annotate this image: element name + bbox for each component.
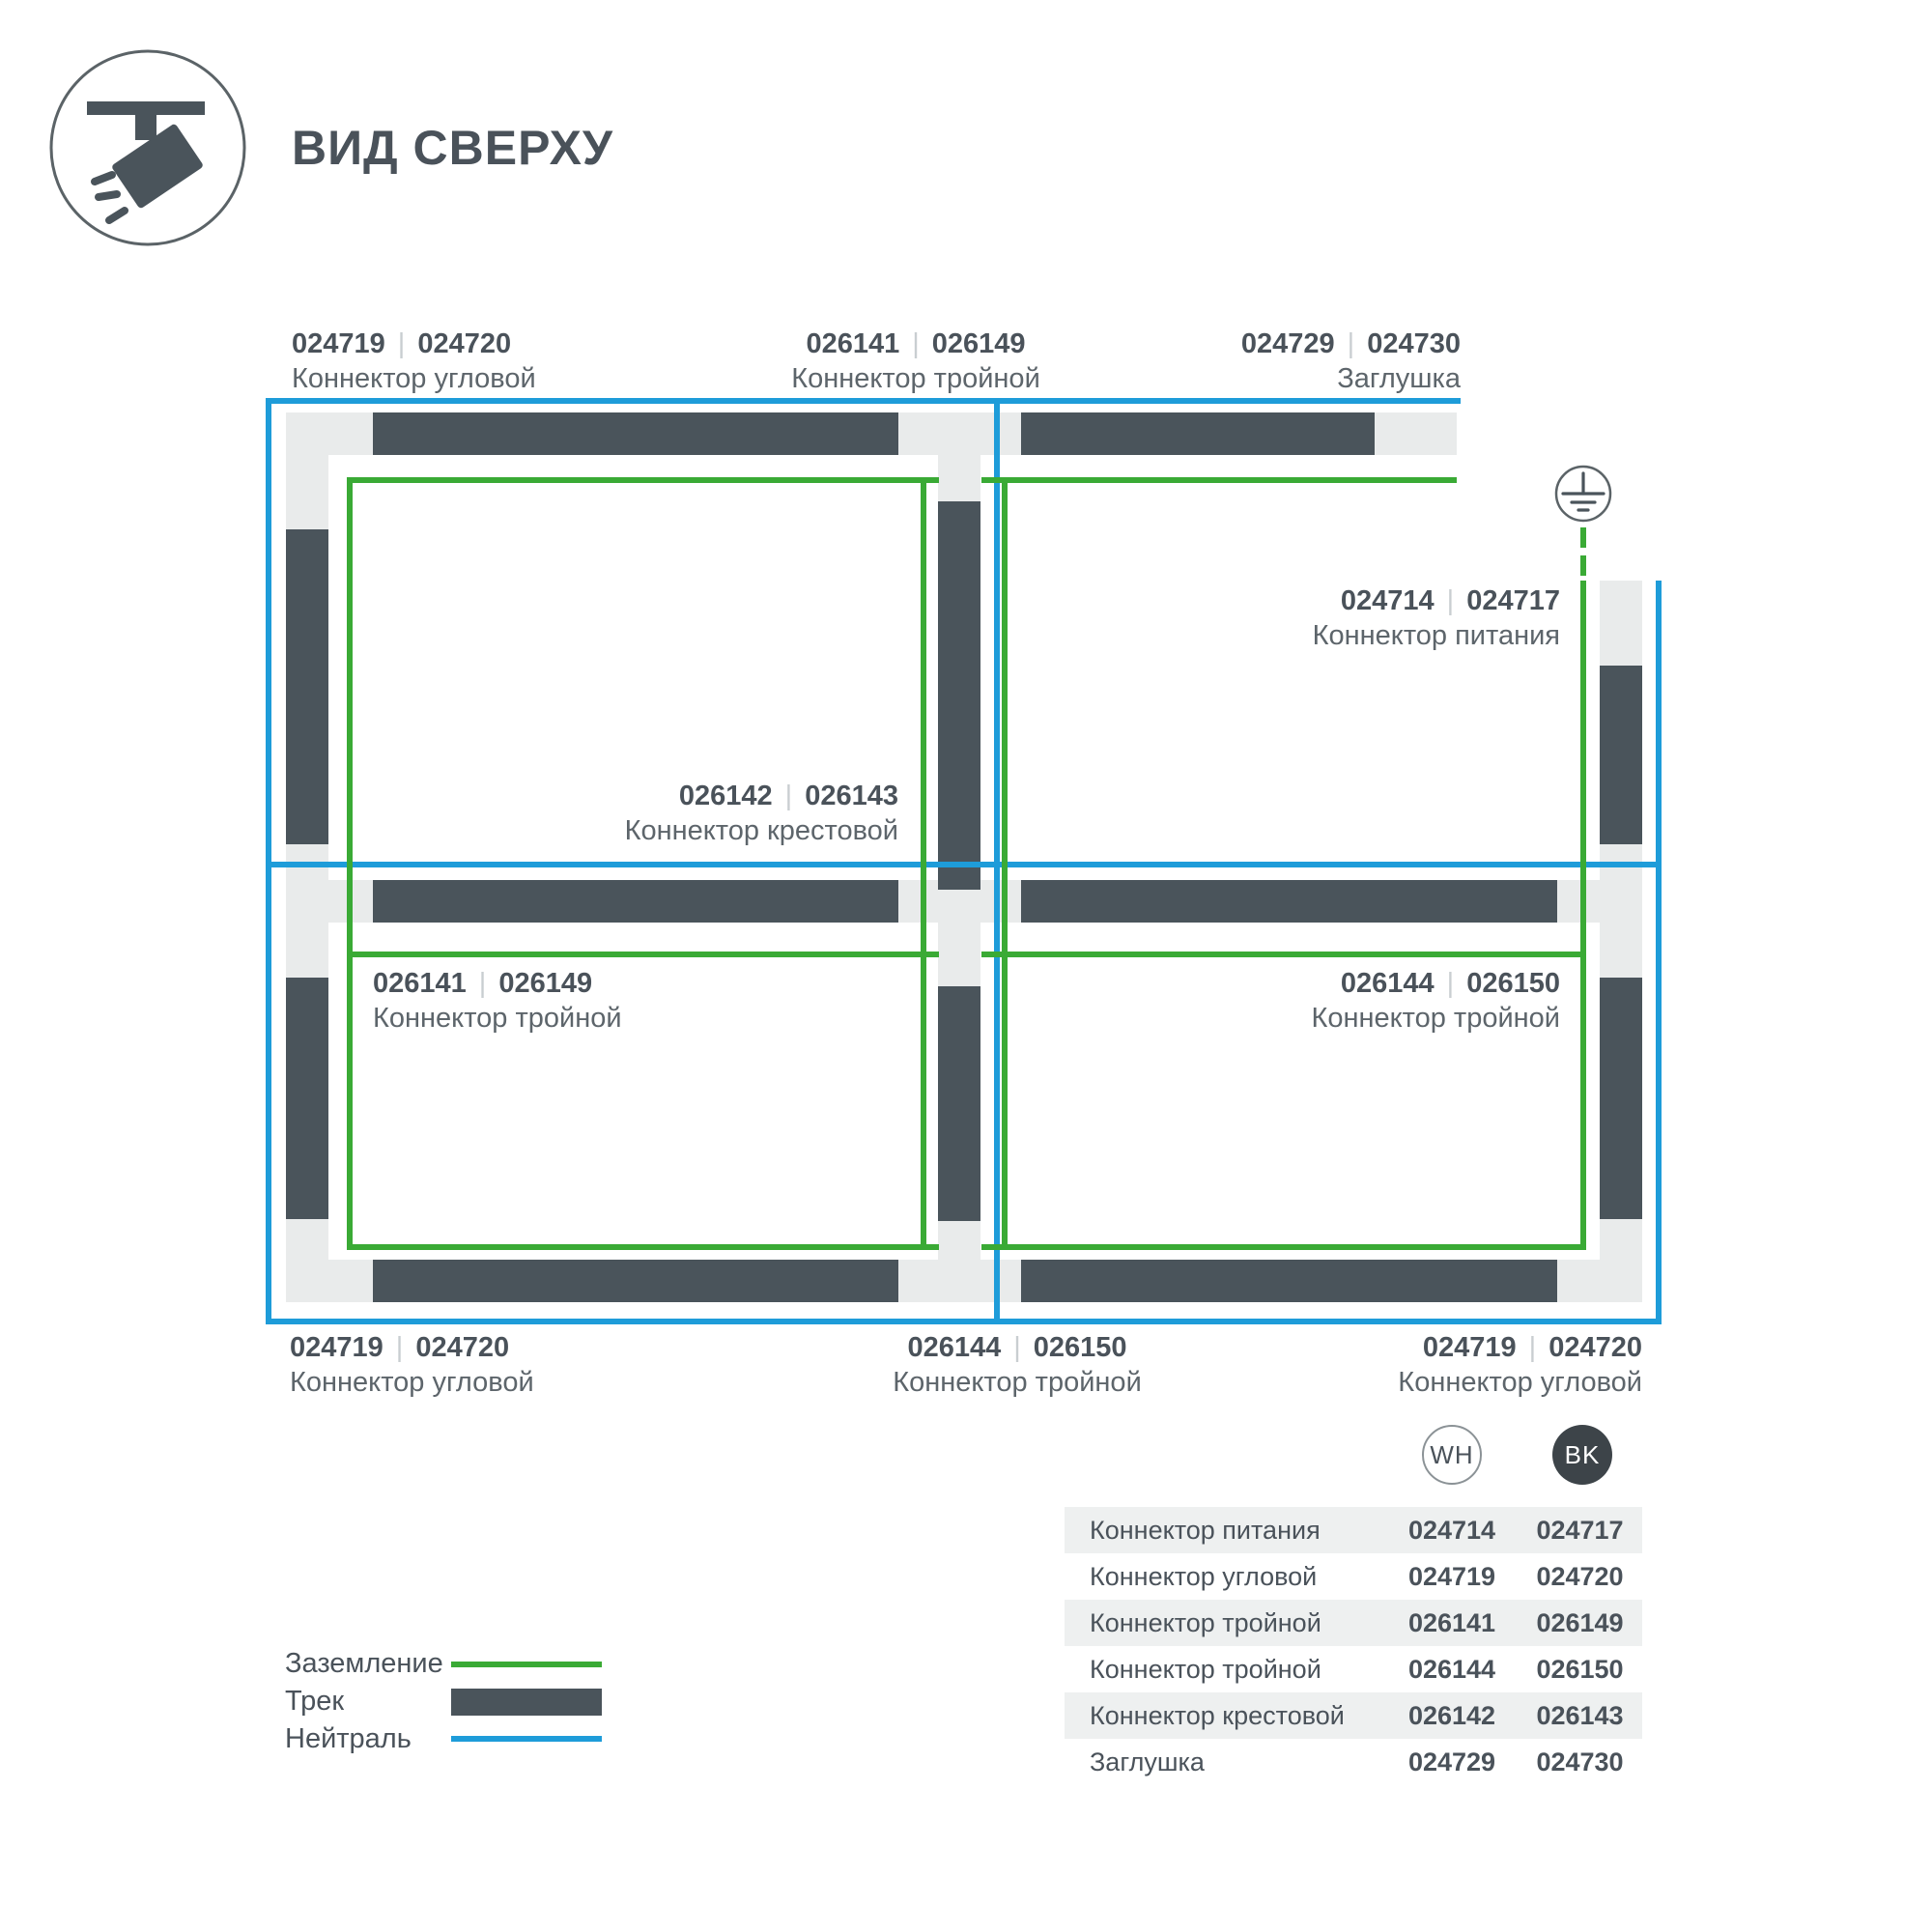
track-bar-top-left [373,412,898,455]
track-bar-left-lower [286,978,328,1219]
ground-dash-2 [1580,555,1586,576]
part-code: 024720 [417,328,511,359]
row-code-bk: 026149 [1518,1600,1642,1646]
code-separator: | [1335,328,1368,359]
part-code: 026149 [498,968,592,999]
part-code: 026150 [1034,1332,1127,1363]
track-bar-middle-right [1021,880,1557,923]
part-code: 026144 [907,1332,1001,1363]
part-code: 024729 [1241,328,1335,359]
part-code: 026141 [373,968,467,999]
part-code: 026143 [805,781,898,811]
row-code-wh: 026142 [1372,1692,1532,1739]
row-part-name: Коннектор угловой [1090,1553,1317,1600]
row-code-wh: 026141 [1372,1600,1532,1646]
part-code: 026149 [932,328,1026,359]
page: ВИД СВЕРХУ [0,0,1932,1932]
table-row: Коннектор тройной 026144 026150 [1065,1646,1642,1692]
row-code-bk: 024730 [1518,1739,1642,1785]
part-code: 026150 [1466,968,1560,999]
row-code-bk: 026150 [1518,1646,1642,1692]
part-name: Заглушка [1241,363,1461,395]
neutral-line-left [266,398,271,1324]
row-part-name: Коннектор тройной [1090,1600,1321,1646]
part-code: 024717 [1466,585,1560,616]
part-code: 026141 [806,328,899,359]
neutral-line-right [1656,581,1662,1324]
label-cross-connector: 026142|026143 Коннектор крестовой [625,781,898,847]
label-connector-corner-bottom-left: 024719|024720 Коннектор угловой [290,1332,534,1399]
code-separator: | [773,781,806,811]
part-code: 024714 [1341,585,1435,616]
ground-line-v-centerleft [921,477,926,1250]
ground-line-top-left [350,477,939,483]
legend-swatch-ground [451,1662,602,1667]
ground-line-bottom-left [350,1244,939,1250]
legend-swatch-track [451,1689,602,1716]
track-bar-bottom-right [1021,1260,1557,1302]
part-code: 026142 [679,781,773,811]
track-bar-center-upper [938,501,980,890]
legend-label-ground: Заземление [285,1648,443,1679]
track-bar-right-upper [1600,666,1642,844]
ground-line-middle-left [350,952,939,957]
track-bar-top-right [1021,412,1375,455]
part-name: Коннектор тройной [373,1003,622,1035]
part-name: Коннектор угловой [1398,1367,1642,1399]
row-code-bk: 026143 [1518,1692,1642,1739]
neutral-line-top [266,398,1461,404]
legend-label-track: Трек [285,1686,344,1717]
neutral-line-center [994,398,1000,1324]
ground-line-top-right [981,477,1457,483]
code-separator: | [1517,1332,1549,1363]
row-code-wh: 024714 [1372,1507,1532,1553]
row-code-wh: 024729 [1372,1739,1532,1785]
label-connector-corner-top-left: 024719|024720 Коннектор угловой [292,328,536,395]
ground-line-bottom-right [981,1244,1586,1250]
row-code-bk: 024717 [1518,1507,1642,1553]
label-connector-tee-bottom-center: 026144|026150 Коннектор тройной [824,1332,1210,1399]
ground-dash-1 [1580,527,1586,548]
track-bar-bottom-left [373,1260,898,1302]
code-separator: | [1435,968,1467,999]
neutral-line-bottom [266,1319,1662,1324]
part-code: 024719 [292,328,385,359]
table-row: Коннектор крестовой 026142 026143 [1065,1692,1642,1739]
code-separator: | [385,328,418,359]
part-code: 024719 [290,1332,384,1363]
label-power-connector: 024714|024717 Коннектор питания [1313,585,1560,652]
row-code-wh: 024719 [1372,1553,1532,1600]
code-separator: | [1435,585,1467,616]
part-code: 024720 [415,1332,509,1363]
track-bar-middle-left [373,880,898,923]
track-bar-right-lower [1600,978,1642,1219]
table-row: Коннектор питания 024714 024717 [1065,1507,1642,1553]
neutral-line-middle [266,862,1662,867]
legend-swatch-neutral [451,1736,602,1742]
row-part-name: Коннектор крестовой [1090,1692,1345,1739]
label-endcap-top-right: 024729|024730 Заглушка [1241,328,1461,395]
color-badge-bk: BK [1552,1425,1612,1485]
label-connector-tee-mid-left: 026141|026149 Коннектор тройной [373,968,622,1035]
row-code-bk: 024720 [1518,1553,1642,1600]
part-name: Коннектор угловой [292,363,536,395]
label-connector-tee-top-center: 026141|026149 Коннектор тройной [723,328,1109,395]
code-separator: | [467,968,499,999]
part-code: 024719 [1423,1332,1517,1363]
table-row: Заглушка 024729 024730 [1065,1739,1642,1785]
part-name: Коннектор тройной [824,1367,1210,1399]
part-code: 024730 [1367,328,1461,359]
part-name: Коннектор тройной [1311,1003,1560,1035]
earth-ground-icon [1552,464,1614,526]
part-code: 024720 [1548,1332,1642,1363]
ground-line-v-left [347,477,353,1250]
part-name: Коннектор угловой [290,1367,534,1399]
part-code: 026144 [1341,968,1435,999]
ground-line-middle-right [981,952,1586,957]
row-part-name: Коннектор тройной [1090,1646,1321,1692]
label-connector-tee-mid-right: 026144|026150 Коннектор тройной [1311,968,1560,1035]
legend-label-neutral: Нейтраль [285,1723,412,1754]
ground-line-v-right [1580,581,1586,1250]
color-badge-wh: WH [1422,1425,1482,1485]
part-name: Коннектор тройной [723,363,1109,395]
track-bar-left-upper [286,529,328,844]
track-light-top-view-icon [48,48,247,247]
code-separator: | [899,328,932,359]
part-name: Коннектор крестовой [625,815,898,847]
code-separator: | [1001,1332,1034,1363]
part-name: Коннектор питания [1313,620,1560,652]
track-bar-center-lower [938,986,980,1221]
page-title: ВИД СВЕРХУ [292,120,613,176]
label-connector-corner-bottom-right: 024719|024720 Коннектор угловой [1398,1332,1642,1399]
code-separator: | [384,1332,416,1363]
table-row: Коннектор тройной 026141 026149 [1065,1600,1642,1646]
table-row: Коннектор угловой 024719 024720 [1065,1553,1642,1600]
row-part-name: Заглушка [1090,1739,1205,1785]
row-part-name: Коннектор питания [1090,1507,1321,1553]
row-code-wh: 026144 [1372,1646,1532,1692]
ground-line-v-centerright [1002,477,1008,1250]
